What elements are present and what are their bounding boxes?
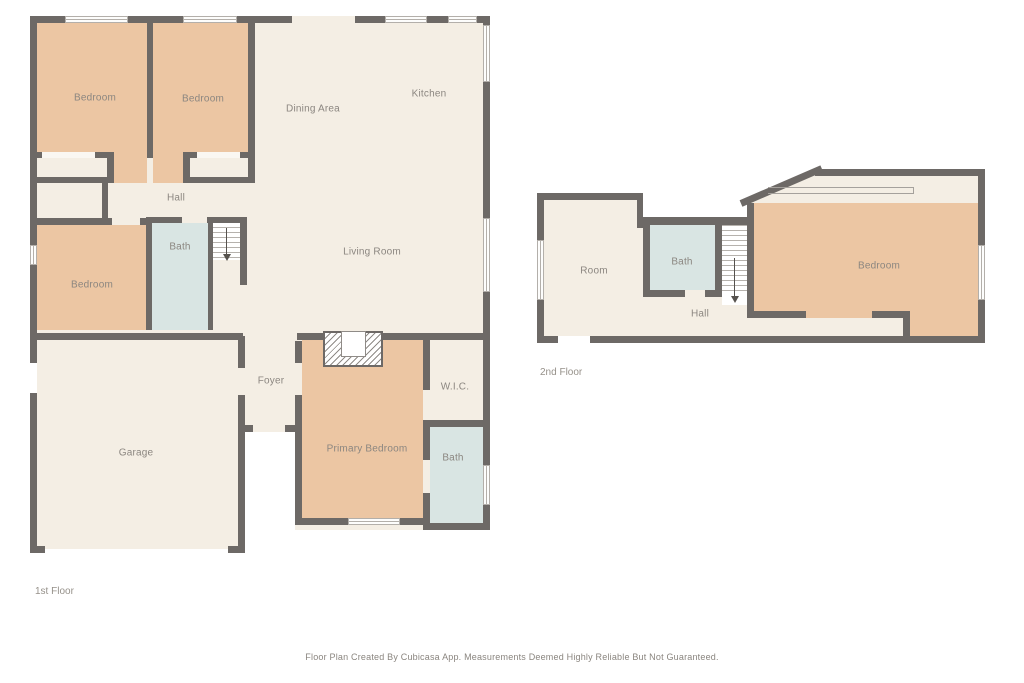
wall bbox=[147, 16, 153, 158]
room-label-foyer: Foyer bbox=[258, 376, 285, 387]
wall bbox=[643, 225, 650, 297]
room-label-hall-2f: Hall bbox=[691, 309, 709, 320]
window bbox=[183, 16, 237, 23]
room-label-bedroom-midleft: Bedroom bbox=[71, 280, 113, 291]
wall bbox=[815, 169, 985, 176]
window bbox=[978, 245, 985, 300]
room-label-bath2: Bath bbox=[442, 453, 463, 464]
closet-door-opening bbox=[197, 152, 240, 158]
wall bbox=[238, 425, 253, 432]
wall bbox=[537, 193, 643, 200]
closet-door-opening bbox=[42, 152, 95, 158]
window bbox=[483, 465, 490, 505]
floor1-bedroom-topmid-fill bbox=[153, 23, 248, 152]
wall bbox=[295, 341, 302, 363]
wall bbox=[30, 333, 243, 340]
room-label-kitchen: Kitchen bbox=[412, 89, 447, 100]
floor2-title: 2nd Floor bbox=[540, 367, 582, 378]
wall bbox=[240, 217, 247, 285]
window bbox=[483, 25, 490, 82]
room-label-hall: Hall bbox=[167, 193, 185, 204]
door-opening bbox=[112, 218, 140, 225]
window bbox=[537, 240, 544, 300]
fireplace-firebox bbox=[341, 331, 366, 357]
window bbox=[385, 16, 427, 23]
room-label-room-2f: Room bbox=[580, 266, 607, 277]
wall bbox=[297, 333, 325, 340]
wall bbox=[183, 177, 248, 183]
wall-opening bbox=[558, 336, 590, 343]
floor1-bedroom-topmid-door-strip bbox=[153, 152, 183, 183]
floor1-bath2-fill bbox=[430, 427, 483, 523]
window bbox=[65, 16, 128, 23]
wall bbox=[747, 203, 754, 318]
window bbox=[448, 16, 477, 23]
wall bbox=[423, 493, 430, 523]
wall bbox=[754, 311, 806, 318]
wall bbox=[208, 223, 213, 330]
room-label-bath: Bath bbox=[169, 242, 190, 253]
wall bbox=[107, 152, 114, 183]
wall bbox=[30, 177, 107, 183]
wall bbox=[903, 311, 910, 343]
wall bbox=[643, 290, 722, 297]
floor1-bedroom-midleft-fill bbox=[37, 225, 146, 330]
floor1-stair-arrow-stem bbox=[226, 228, 227, 254]
wall bbox=[423, 333, 430, 390]
wall bbox=[715, 225, 722, 297]
floor1-title: 1st Floor bbox=[35, 586, 74, 597]
room-label-living-room: Living Room bbox=[343, 247, 401, 258]
room-label-wic: W.I.C. bbox=[441, 382, 469, 393]
room-label-bedroom-2f: Bedroom bbox=[858, 261, 900, 272]
wall bbox=[423, 427, 430, 460]
wall-opening bbox=[292, 16, 355, 23]
ceiling-break-line bbox=[768, 187, 914, 194]
wall bbox=[295, 395, 302, 525]
door-opening bbox=[685, 290, 705, 297]
floor2-bedroom-closet-fill bbox=[754, 318, 903, 336]
wall bbox=[537, 336, 985, 343]
disclaimer-text: Floor Plan Created By Cubicasa App. Meas… bbox=[0, 652, 1024, 662]
wall bbox=[248, 16, 255, 183]
room-label-bedroom-topmid: Bedroom bbox=[182, 94, 224, 105]
stairs-down-arrow-icon bbox=[223, 254, 231, 261]
floor1-bedroom-topleft-fill bbox=[37, 23, 147, 152]
wall bbox=[146, 218, 152, 330]
wall bbox=[381, 333, 490, 340]
room-label-bedroom-topleft: Bedroom bbox=[74, 93, 116, 104]
wall bbox=[30, 546, 45, 553]
room-label-dining-area: Dining Area bbox=[286, 104, 340, 115]
garage-side-door-opening bbox=[30, 363, 37, 393]
room-label-primary-bedroom: Primary Bedroom bbox=[327, 444, 408, 455]
wall bbox=[228, 546, 245, 553]
door-opening bbox=[182, 217, 207, 223]
window bbox=[30, 245, 37, 265]
wall bbox=[423, 420, 490, 427]
floor1-bath-fill bbox=[152, 223, 208, 330]
floor1-bedroom-topleft-door-strip bbox=[114, 152, 147, 183]
floor1-garage-fill bbox=[30, 336, 245, 549]
door-opening bbox=[238, 368, 245, 395]
window bbox=[483, 218, 490, 292]
floor2-stair-arrow-stem bbox=[734, 258, 735, 296]
wall bbox=[423, 523, 490, 530]
window bbox=[348, 518, 400, 525]
room-label-garage: Garage bbox=[119, 448, 154, 459]
floorplan-canvas: Bedroom Bedroom Dining Area Kitchen Hall… bbox=[0, 0, 1024, 683]
room-label-bath-2f: Bath bbox=[671, 257, 692, 268]
wall bbox=[643, 217, 754, 225]
stairs-down-arrow-icon bbox=[731, 296, 739, 303]
